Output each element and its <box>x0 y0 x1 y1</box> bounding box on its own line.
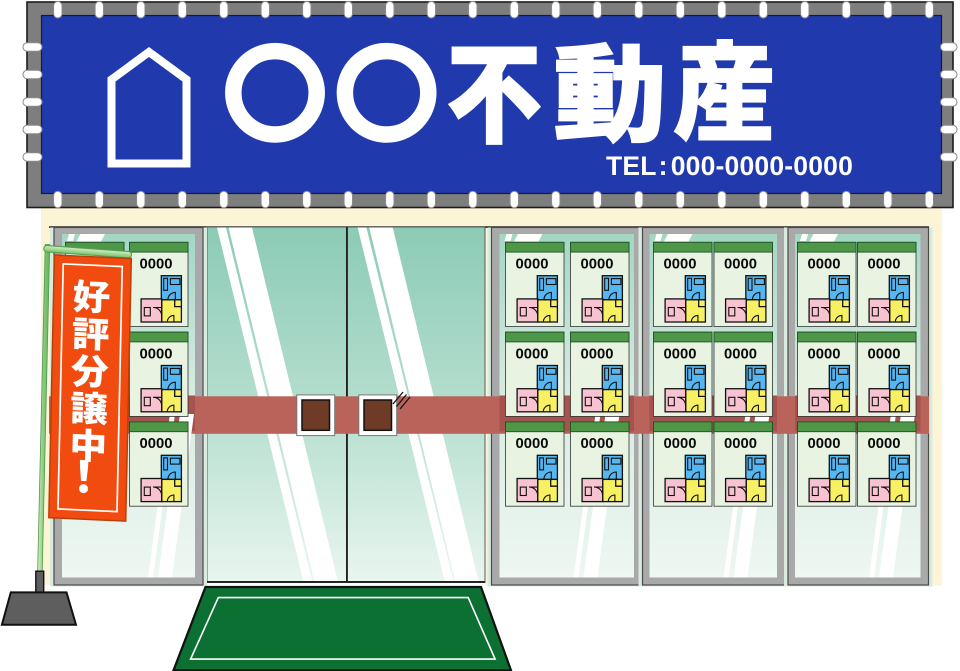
svg-text:TEL:000-0000-0000: TEL:000-0000-0000 <box>606 151 853 181</box>
